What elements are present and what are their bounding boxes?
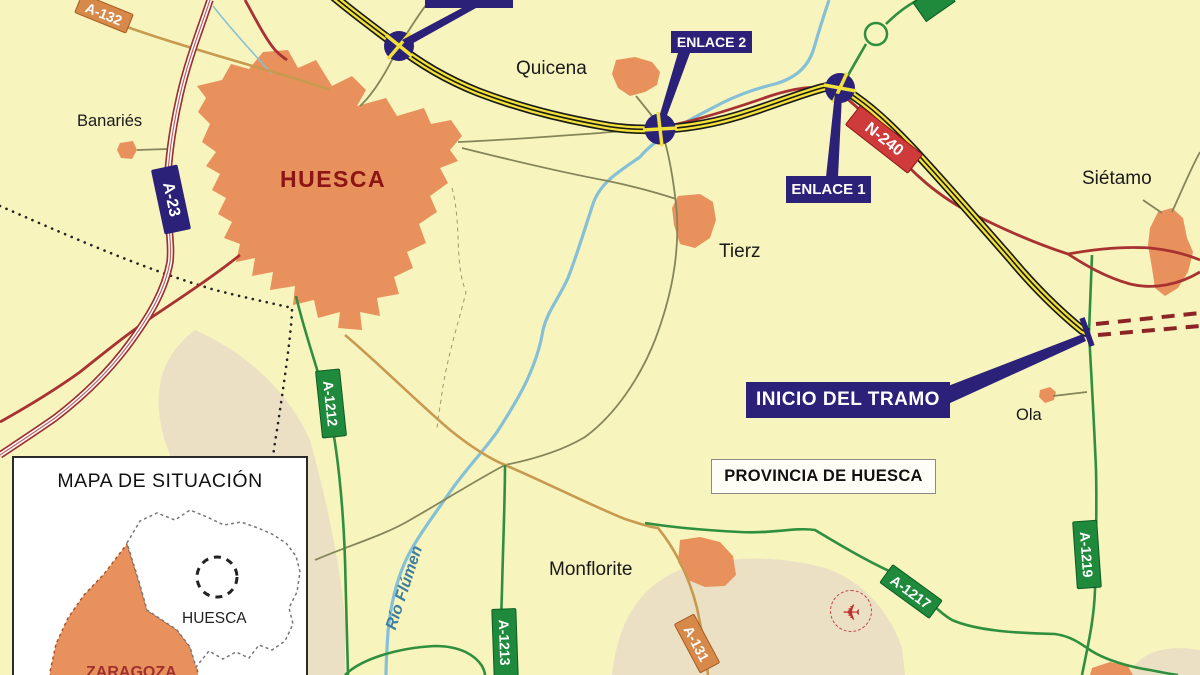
sietamo-label: Siétamo <box>1082 168 1152 190</box>
enlace2-callout: ENLACE 2 <box>671 31 752 53</box>
road-map: HUESCA Banariés Quicena Tierz Siétamo Ol… <box>0 0 1200 675</box>
trail-dashed <box>437 188 466 428</box>
inset-title: MAPA DE SITUACIÓN <box>14 470 306 493</box>
roundabout <box>865 23 887 45</box>
enlace1-callout: ENLACE 1 <box>786 176 871 203</box>
enlace-partial-pointer <box>402 8 476 46</box>
inicio-del-tramo-callout: INICIO DEL TRAMO <box>746 382 950 418</box>
town-ola-area <box>1039 387 1056 403</box>
town-tierz-area <box>672 194 716 248</box>
future-section-dashed <box>1096 313 1200 335</box>
enlace2-pointer <box>660 53 690 118</box>
town-banaries-area <box>117 141 137 159</box>
callout-pointers <box>402 0 1086 404</box>
airplane-icon: ✈ <box>842 600 860 622</box>
quicena-label: Quicena <box>516 58 587 80</box>
road-a1219-line <box>1082 332 1096 675</box>
situation-map-inset: MAPA DE SITUACIÓN HUESCA ZARAGOZA <box>12 456 308 675</box>
provincia-label: PROVINCIA DE HUESCA <box>711 459 936 494</box>
a1219-shield: A-1219 <box>1072 520 1102 590</box>
tierz-label: Tierz <box>719 241 761 263</box>
road-huesca-southeast <box>345 335 505 465</box>
monflorite-label: Monflorite <box>549 559 632 581</box>
enlace-partial-box <box>425 0 513 8</box>
road-a132-line <box>108 20 330 90</box>
banaries-label: Banariés <box>77 112 142 131</box>
huesca-city-label: HUESCA <box>280 166 386 193</box>
road-south-arc <box>345 646 485 675</box>
airport-symbol: ✈ <box>830 590 872 632</box>
enlace1-pointer <box>826 93 842 177</box>
inicio-pointer <box>948 334 1086 404</box>
inset-zaragoza-label: ZARAGOZA <box>86 664 177 675</box>
a1213-shield: A-1213 <box>491 608 518 675</box>
town-quicena-area <box>612 57 660 96</box>
ola-label: Ola <box>1016 406 1042 425</box>
inset-huesca-label: HUESCA <box>182 610 247 628</box>
